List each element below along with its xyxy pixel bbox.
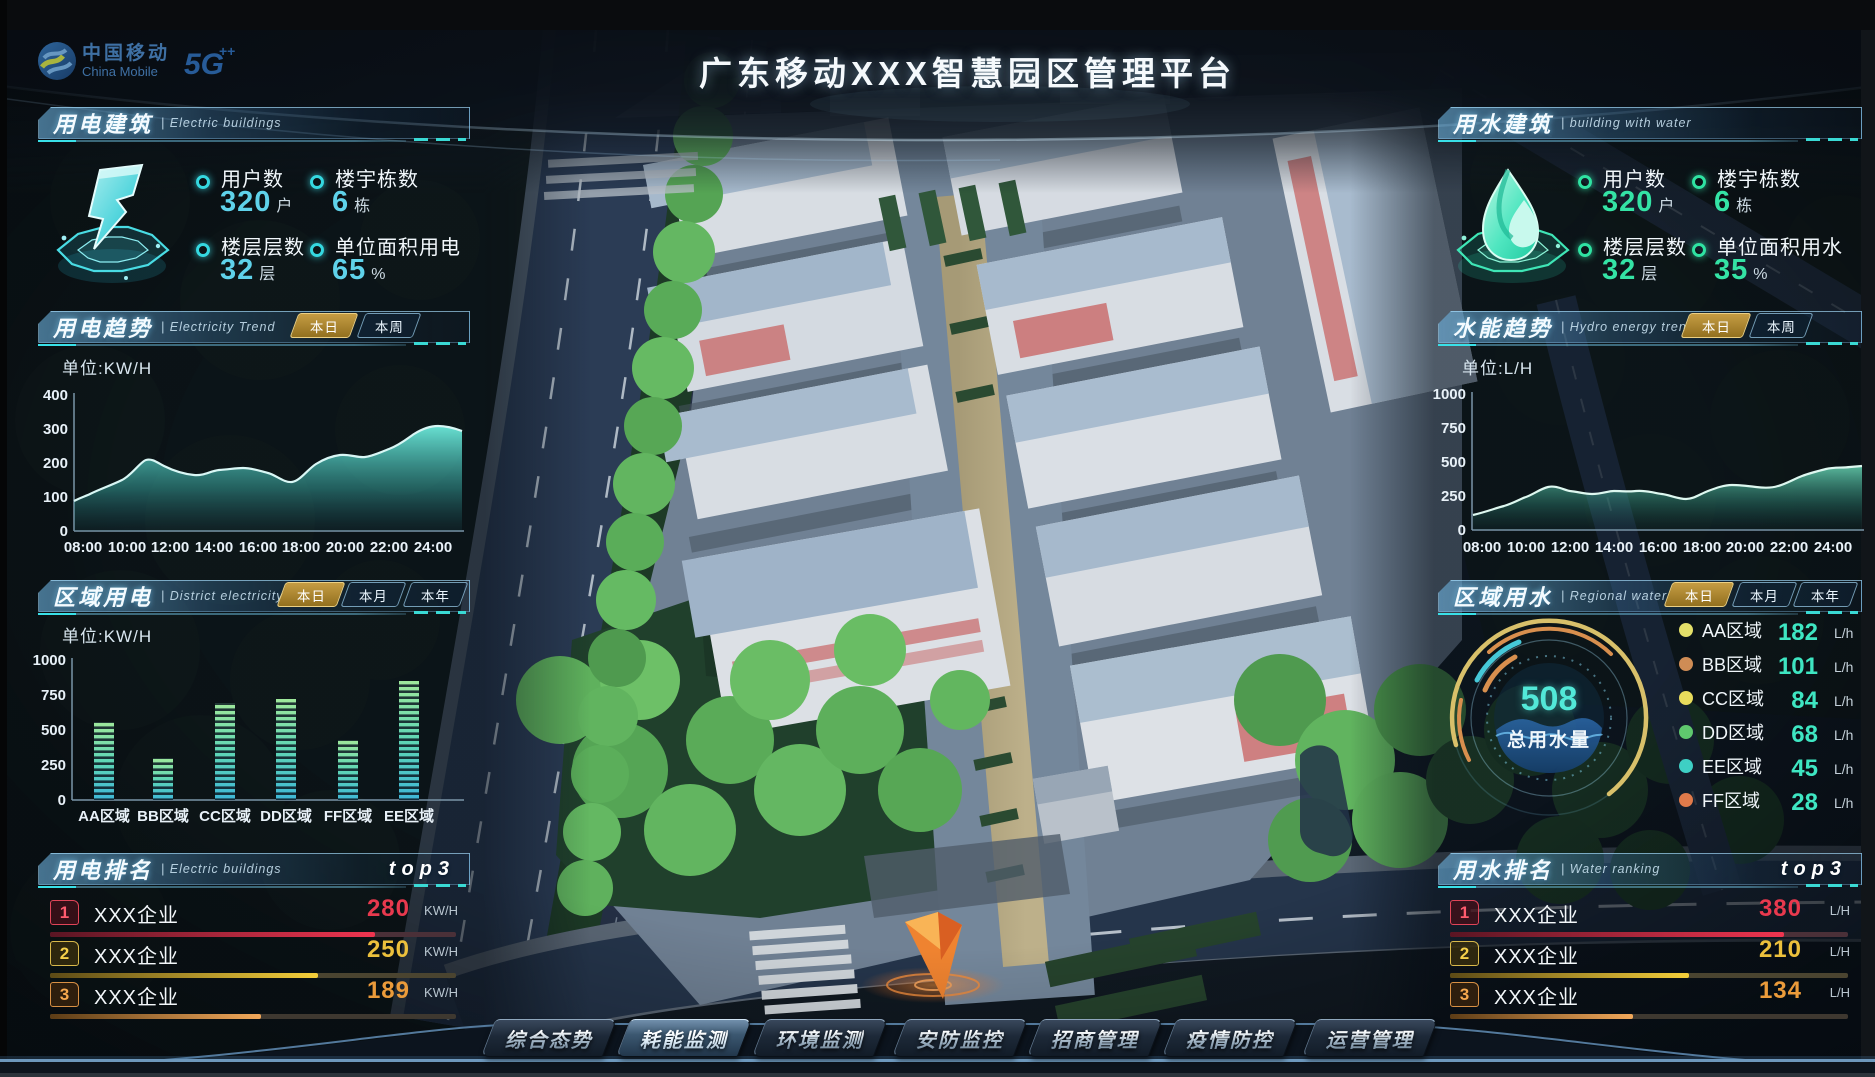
svg-text:18:00: 18:00	[282, 539, 320, 556]
svg-text:18:00: 18:00	[1683, 539, 1721, 556]
svg-text:CC区域: CC区域	[1702, 689, 1764, 709]
svg-text:45: 45	[1791, 755, 1818, 782]
svg-text:750: 750	[1441, 420, 1466, 437]
svg-text:22:00: 22:00	[1770, 539, 1808, 556]
svg-text:14:00: 14:00	[1595, 539, 1633, 556]
svg-text:300: 300	[43, 421, 68, 438]
svg-text:10:00: 10:00	[108, 539, 146, 556]
svg-text:L/h: L/h	[1834, 659, 1853, 675]
svg-text:08:00: 08:00	[64, 539, 102, 556]
svg-text:DD区域: DD区域	[260, 807, 312, 825]
svg-text:L/h: L/h	[1834, 795, 1853, 811]
svg-text:L/h: L/h	[1834, 625, 1853, 641]
svg-text:0: 0	[58, 792, 66, 809]
svg-text:14:00: 14:00	[195, 539, 233, 556]
svg-text:182: 182	[1778, 619, 1818, 646]
svg-text:250: 250	[1441, 488, 1466, 505]
svg-text:100: 100	[43, 489, 68, 506]
svg-text:AA区域: AA区域	[78, 807, 130, 825]
svg-text:++: ++	[219, 43, 235, 59]
svg-text:0: 0	[60, 523, 68, 540]
svg-text:L/h: L/h	[1834, 693, 1853, 709]
svg-text:28: 28	[1791, 789, 1818, 816]
svg-text:08:00: 08:00	[1463, 539, 1501, 556]
svg-text:总用水量: 总用水量	[1507, 728, 1591, 751]
svg-text:508: 508	[1521, 680, 1578, 718]
svg-text:CC区域: CC区域	[199, 807, 251, 825]
svg-text:750: 750	[41, 687, 66, 704]
svg-text:1000: 1000	[33, 652, 66, 669]
svg-text:0: 0	[1458, 522, 1466, 539]
svg-text:24:00: 24:00	[414, 539, 452, 556]
svg-text:DD区域: DD区域	[1702, 723, 1764, 743]
svg-text:BB区域: BB区域	[137, 807, 189, 825]
svg-text:L/h: L/h	[1834, 727, 1853, 743]
svg-text:101: 101	[1778, 653, 1818, 680]
svg-text:中国移动: 中国移动	[82, 41, 170, 64]
svg-text:AA区域: AA区域	[1702, 621, 1762, 641]
svg-text:24:00: 24:00	[1814, 539, 1852, 556]
svg-text:250: 250	[41, 757, 66, 774]
svg-text:200: 200	[43, 455, 68, 472]
svg-text:EE区域: EE区域	[1702, 757, 1762, 777]
svg-text:20:00: 20:00	[1726, 539, 1764, 556]
svg-text:22:00: 22:00	[370, 539, 408, 556]
svg-text:400: 400	[43, 387, 68, 404]
svg-text:EE区域: EE区域	[384, 807, 434, 825]
svg-text:FF区域: FF区域	[324, 807, 372, 825]
svg-text:12:00: 12:00	[1551, 539, 1589, 556]
svg-text:84: 84	[1791, 687, 1818, 714]
svg-text:500: 500	[41, 722, 66, 739]
svg-text:L/h: L/h	[1834, 761, 1853, 777]
svg-text:China Mobile: China Mobile	[82, 64, 158, 79]
svg-text:16:00: 16:00	[1639, 539, 1677, 556]
svg-text:68: 68	[1791, 721, 1818, 748]
svg-text:10:00: 10:00	[1507, 539, 1545, 556]
svg-text:FF区域: FF区域	[1702, 791, 1760, 811]
svg-text:BB区域: BB区域	[1702, 655, 1762, 675]
svg-text:12:00: 12:00	[151, 539, 189, 556]
svg-text:500: 500	[1441, 454, 1466, 471]
svg-text:20:00: 20:00	[326, 539, 364, 556]
svg-text:16:00: 16:00	[239, 539, 277, 556]
svg-text:1000: 1000	[1433, 386, 1466, 403]
